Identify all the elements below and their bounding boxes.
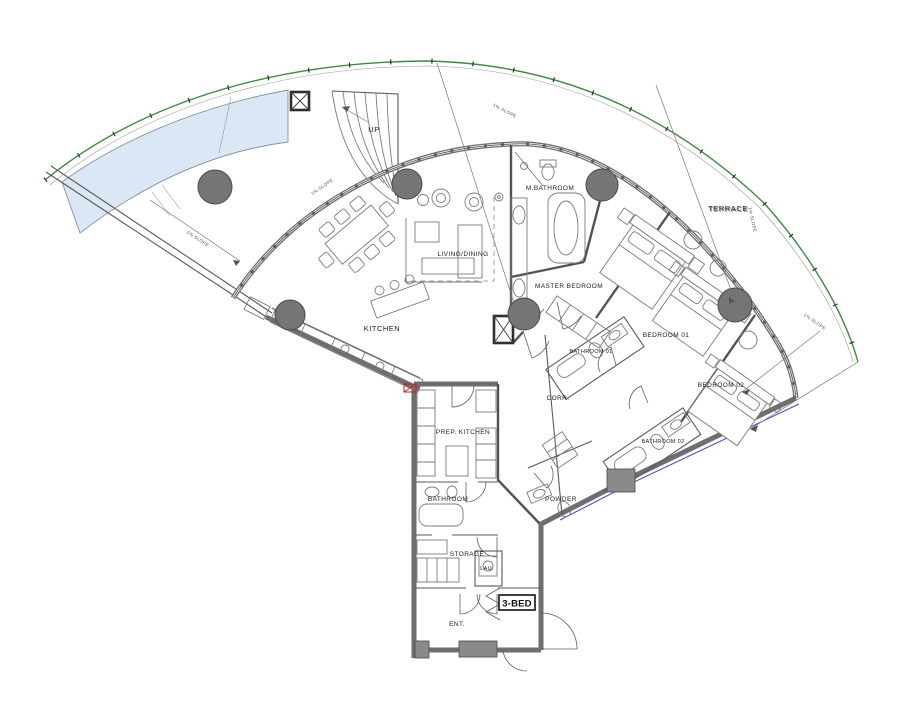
column-5 <box>508 298 540 330</box>
corridor-closet <box>542 432 578 469</box>
room-label-laundry: LAU. <box>480 566 494 572</box>
slope-annotation-a: 1% SLOPE <box>310 177 334 196</box>
room-label-bedroom-02: BEDROOM 02 <box>698 382 745 389</box>
column-2 <box>392 169 422 199</box>
unit-badge: 3-BED <box>499 595 535 610</box>
room-label-living-dining: LIVING/DINING <box>437 251 488 258</box>
dining-set <box>304 184 410 286</box>
room-label-bedroom-01: BEDROOM 01 <box>643 332 690 339</box>
room-labels: LIVING/DINING KITCHEN M.BATHROOM MASTER … <box>364 125 748 628</box>
storage-fixtures <box>417 540 459 582</box>
slope-annotation-b: 1% SLOPE <box>492 102 517 118</box>
shaft-icon <box>291 92 309 110</box>
column-6 <box>718 288 752 322</box>
column-4 <box>275 300 305 330</box>
pool <box>62 90 288 233</box>
room-label-bathroom: BATHROOM <box>428 496 468 503</box>
column-1 <box>198 170 232 204</box>
room-label-master-bedroom: MASTER BEDROOM <box>535 283 603 290</box>
master-wardrobe <box>546 296 610 348</box>
room-label-corridor: CORR. <box>547 395 570 402</box>
column-3 <box>586 169 618 201</box>
slope-annotation-d: 1% SLOPE <box>803 312 827 331</box>
floor-plan-page: LIVING/DINING KITCHEN M.BATHROOM MASTER … <box>0 0 907 712</box>
interior-walls <box>414 145 755 588</box>
room-label-bathroom-01: BATHROOM 01 <box>570 349 613 355</box>
unit-badge-label: 3-BED <box>502 599 532 610</box>
stairs <box>332 91 398 204</box>
room-label-kitchen: KITCHEN <box>364 324 400 333</box>
room-label-terrace: TERRACE <box>708 204 748 213</box>
staff-bathroom-fixtures <box>419 486 463 526</box>
room-label-m-bathroom: M.BATHROOM <box>526 185 574 192</box>
room-label-bathroom-02: BATHROOM 02 <box>642 439 685 445</box>
stairs-up-label: UP <box>368 125 379 134</box>
kitchen-island <box>367 271 430 318</box>
room-label-entrance: ENT. <box>449 621 465 628</box>
square-column <box>607 469 635 492</box>
room-label-powder: POWDER <box>545 496 577 503</box>
floor-plan-svg: LIVING/DINING KITCHEN M.BATHROOM MASTER … <box>0 0 907 712</box>
slope-annotation-c: 1% SLOPE <box>747 207 757 233</box>
room-label-storage: STORAGE <box>450 551 485 558</box>
sofa-set <box>404 189 503 282</box>
room-label-prep-kitchen: PREP. KITCHEN <box>436 429 490 436</box>
